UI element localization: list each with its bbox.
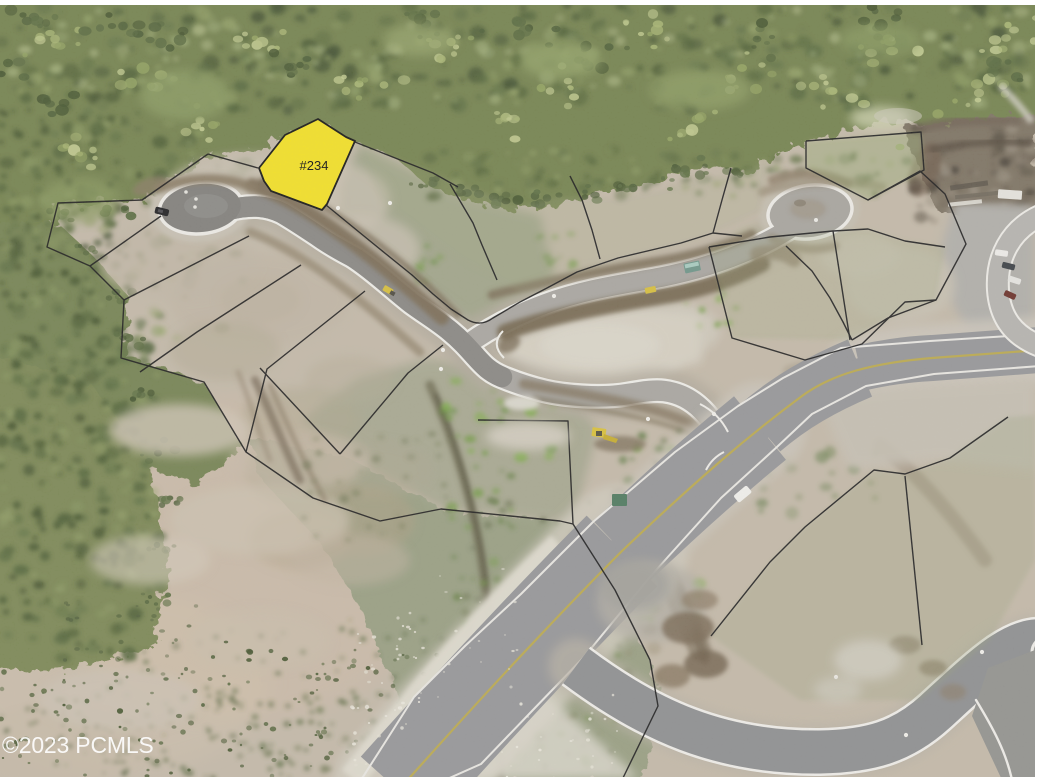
svg-text:©2023 PCMLS: ©2023 PCMLS <box>2 732 154 758</box>
